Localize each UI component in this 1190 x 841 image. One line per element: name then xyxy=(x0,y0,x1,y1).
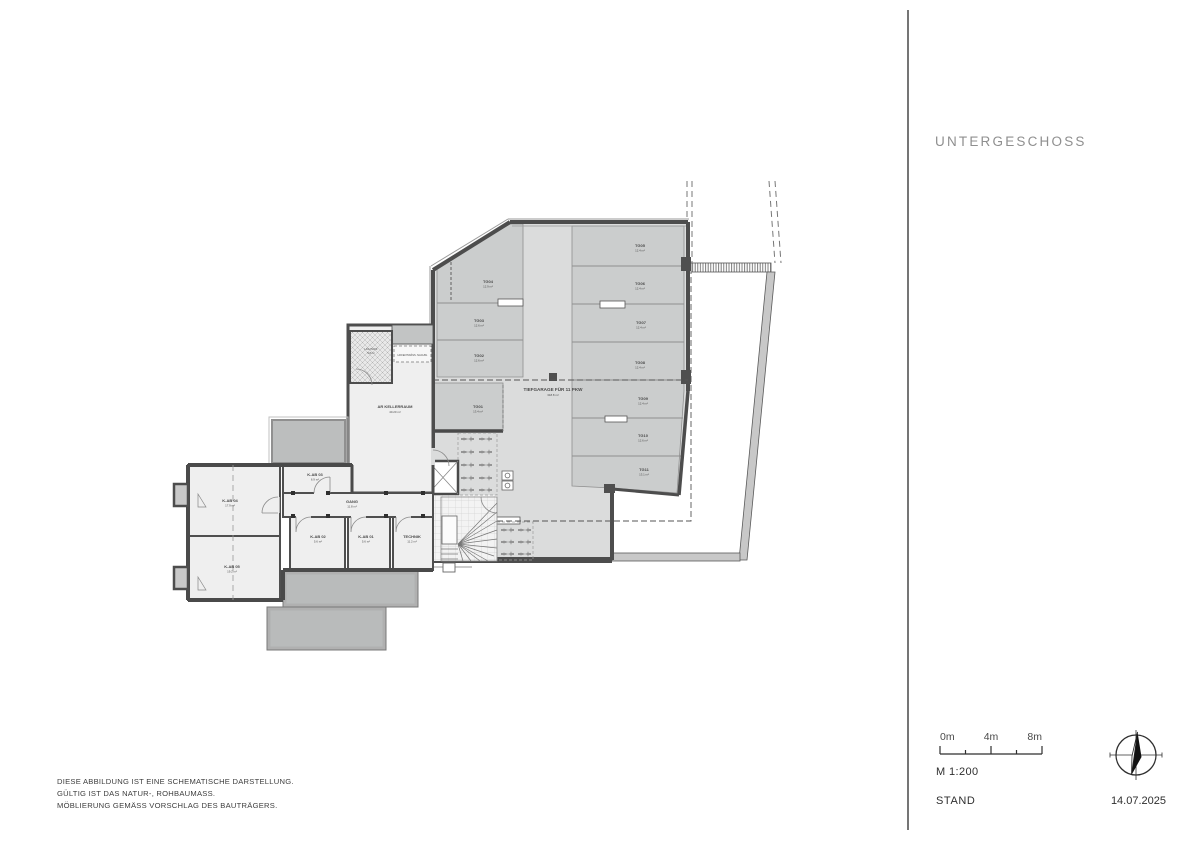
stall-area: 12.9 m² xyxy=(483,285,493,289)
disclaimer-text: DIESE ABBILDUNG IST EINE SCHEMATISCHE DA… xyxy=(57,776,294,812)
scale-bar-ruler xyxy=(940,746,1042,754)
stall-area: 12.4 m² xyxy=(635,287,645,291)
room-kab01 xyxy=(348,517,390,570)
stall-area: 12.4 m² xyxy=(635,366,645,370)
stall-area: 12.6 m² xyxy=(638,439,648,443)
storage-upper-section xyxy=(348,325,449,493)
disclaimer-line-1: DIESE ABBILDUNG IST EINE SCHEMATISCHE DA… xyxy=(57,776,294,788)
stall-area: 12.6 m² xyxy=(474,359,484,363)
technik-label: TECHNIK xyxy=(403,534,421,539)
shaft-block xyxy=(392,325,433,344)
stair-core xyxy=(442,516,457,544)
courtyard-lightwell xyxy=(269,417,348,466)
gang-area: 11.8 m² xyxy=(347,505,357,509)
technik-area: 11.2 m² xyxy=(407,540,417,544)
garage-label: TIEFGARAGE FÜR 11 PKW xyxy=(524,386,584,392)
lichthof-room xyxy=(350,331,392,383)
scale-bar: 0m 4m 8m xyxy=(930,728,1052,762)
stall-label: TG05 xyxy=(635,243,646,248)
scale-tick-4m: 4m xyxy=(984,731,999,743)
stall-area: 12.4 m² xyxy=(638,402,648,406)
kab03-area: 6.9 m² xyxy=(311,478,319,482)
boundary-projection-lines xyxy=(687,181,781,263)
terrace-lower xyxy=(267,607,386,650)
kab03-label: K-AB 03 xyxy=(307,472,323,477)
garage-area: 318.8 m² xyxy=(547,393,558,397)
kab02-area: 5.6 m² xyxy=(314,540,322,544)
stand-label: STAND xyxy=(936,795,975,807)
stall-area: 12.6 m² xyxy=(474,324,484,328)
north-arrow-icon xyxy=(1108,727,1164,783)
kab04-label: K-AB 04 xyxy=(222,498,238,503)
drainage-note-label: HOFENTWÄSS. NACHW. xyxy=(397,353,427,357)
stall-label: TG01 xyxy=(473,404,484,409)
terrace-upper xyxy=(283,571,418,607)
room-kab02 xyxy=(290,517,345,570)
stall-label: TG07 xyxy=(636,320,647,325)
stall-label: TG03 xyxy=(474,318,485,323)
stall-label: TG08 xyxy=(635,360,646,365)
stall-label: TG10 xyxy=(638,433,649,438)
room-technik xyxy=(393,517,433,570)
floorplan-page: TIEFGARAGE FÜR 11 PKW 318.8 m² TG01 13.4… xyxy=(0,0,1190,841)
kab04-area: 17.9 m² xyxy=(225,504,235,508)
ar-kellerraum-area: 40.20 m² xyxy=(389,410,400,414)
light-well-south xyxy=(443,563,455,572)
corridor-gang xyxy=(283,493,433,517)
panel-divider xyxy=(907,10,909,830)
scale-ratio: M 1:200 xyxy=(936,766,979,778)
stall-label: TG04 xyxy=(483,279,494,284)
stand-date: 14.07.2025 xyxy=(1100,795,1166,807)
stall-label: TG02 xyxy=(474,353,485,358)
kab02-label: K-AB 02 xyxy=(310,534,326,539)
stair-zone xyxy=(433,495,497,561)
stall-area: 12.4 m² xyxy=(636,326,646,330)
page-title: UNTERGESCHOSS xyxy=(935,134,1087,149)
stall-area: 12.4 m² xyxy=(635,249,645,253)
lichthof-area: 5.8 m² xyxy=(367,351,374,355)
stall-label: TG09 xyxy=(638,396,649,401)
kab01-area: 5.6 m² xyxy=(362,540,370,544)
disclaimer-line-2: GÜLTIG IST DAS NATUR-, ROHBAUMASS. xyxy=(57,788,294,800)
ar-kellerraum-label: AR KELLERRAUM xyxy=(378,404,414,409)
kab01-label: K-AB 01 xyxy=(358,534,374,539)
stall-tg01-box xyxy=(433,383,503,431)
stall-label: TG06 xyxy=(635,281,646,286)
lichthof-label: LICHTHOF xyxy=(365,347,378,351)
gang-label: GANG xyxy=(346,499,358,504)
scale-tick-8m: 8m xyxy=(1027,731,1042,743)
floorplan-drawing: TIEFGARAGE FÜR 11 PKW 318.8 m² TG01 13.4… xyxy=(0,0,1190,841)
stall-area: 13.1 m² xyxy=(639,473,649,477)
stall-label: TG11 xyxy=(639,467,650,472)
stall-area: 13.4 m² xyxy=(473,410,483,414)
ar-door-gap xyxy=(431,448,435,465)
kab05-area: 19.2 m² xyxy=(227,570,237,574)
kab05-label: K-AB 05 xyxy=(224,564,240,569)
scale-tick-0m: 0m xyxy=(940,731,955,743)
disclaimer-line-3: MÖBLIERUNG GEMÄSS VORSCHLAG DES BAUTRÄGE… xyxy=(57,800,294,812)
